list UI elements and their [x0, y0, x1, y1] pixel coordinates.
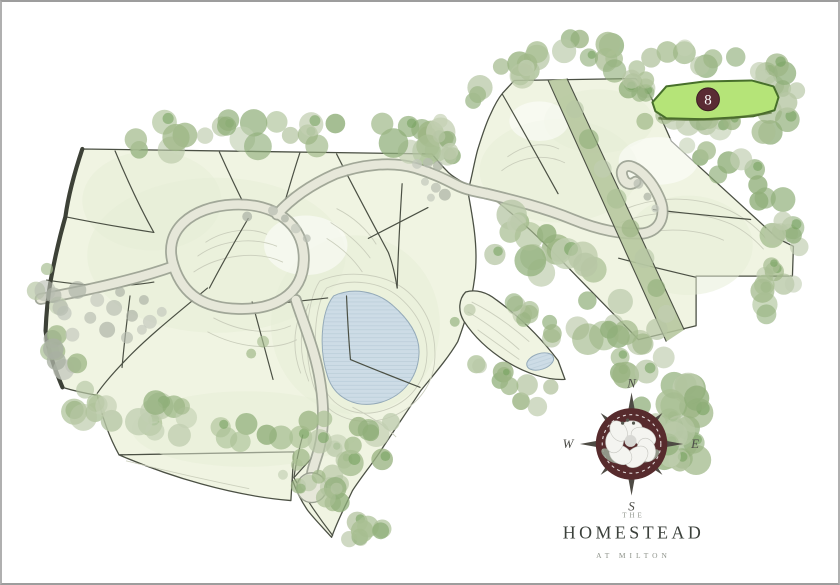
compass-west-label: W [563, 436, 575, 451]
lot-8-badge[interactable]: 8 [697, 88, 720, 111]
site-plan-map: 8 [2, 2, 838, 583]
logo-prefix: THE [622, 511, 644, 519]
compass-east-label: E [690, 436, 699, 451]
plat-map-frame: 8 [0, 0, 840, 585]
lot-8-number: 8 [704, 92, 711, 108]
logo-name: HOMESTEAD [563, 522, 704, 542]
logo-tagline: AT MILTON [596, 551, 671, 560]
logo: THE HOMESTEAD AT MILTON [563, 511, 704, 560]
compass-north-label: N [626, 375, 637, 390]
